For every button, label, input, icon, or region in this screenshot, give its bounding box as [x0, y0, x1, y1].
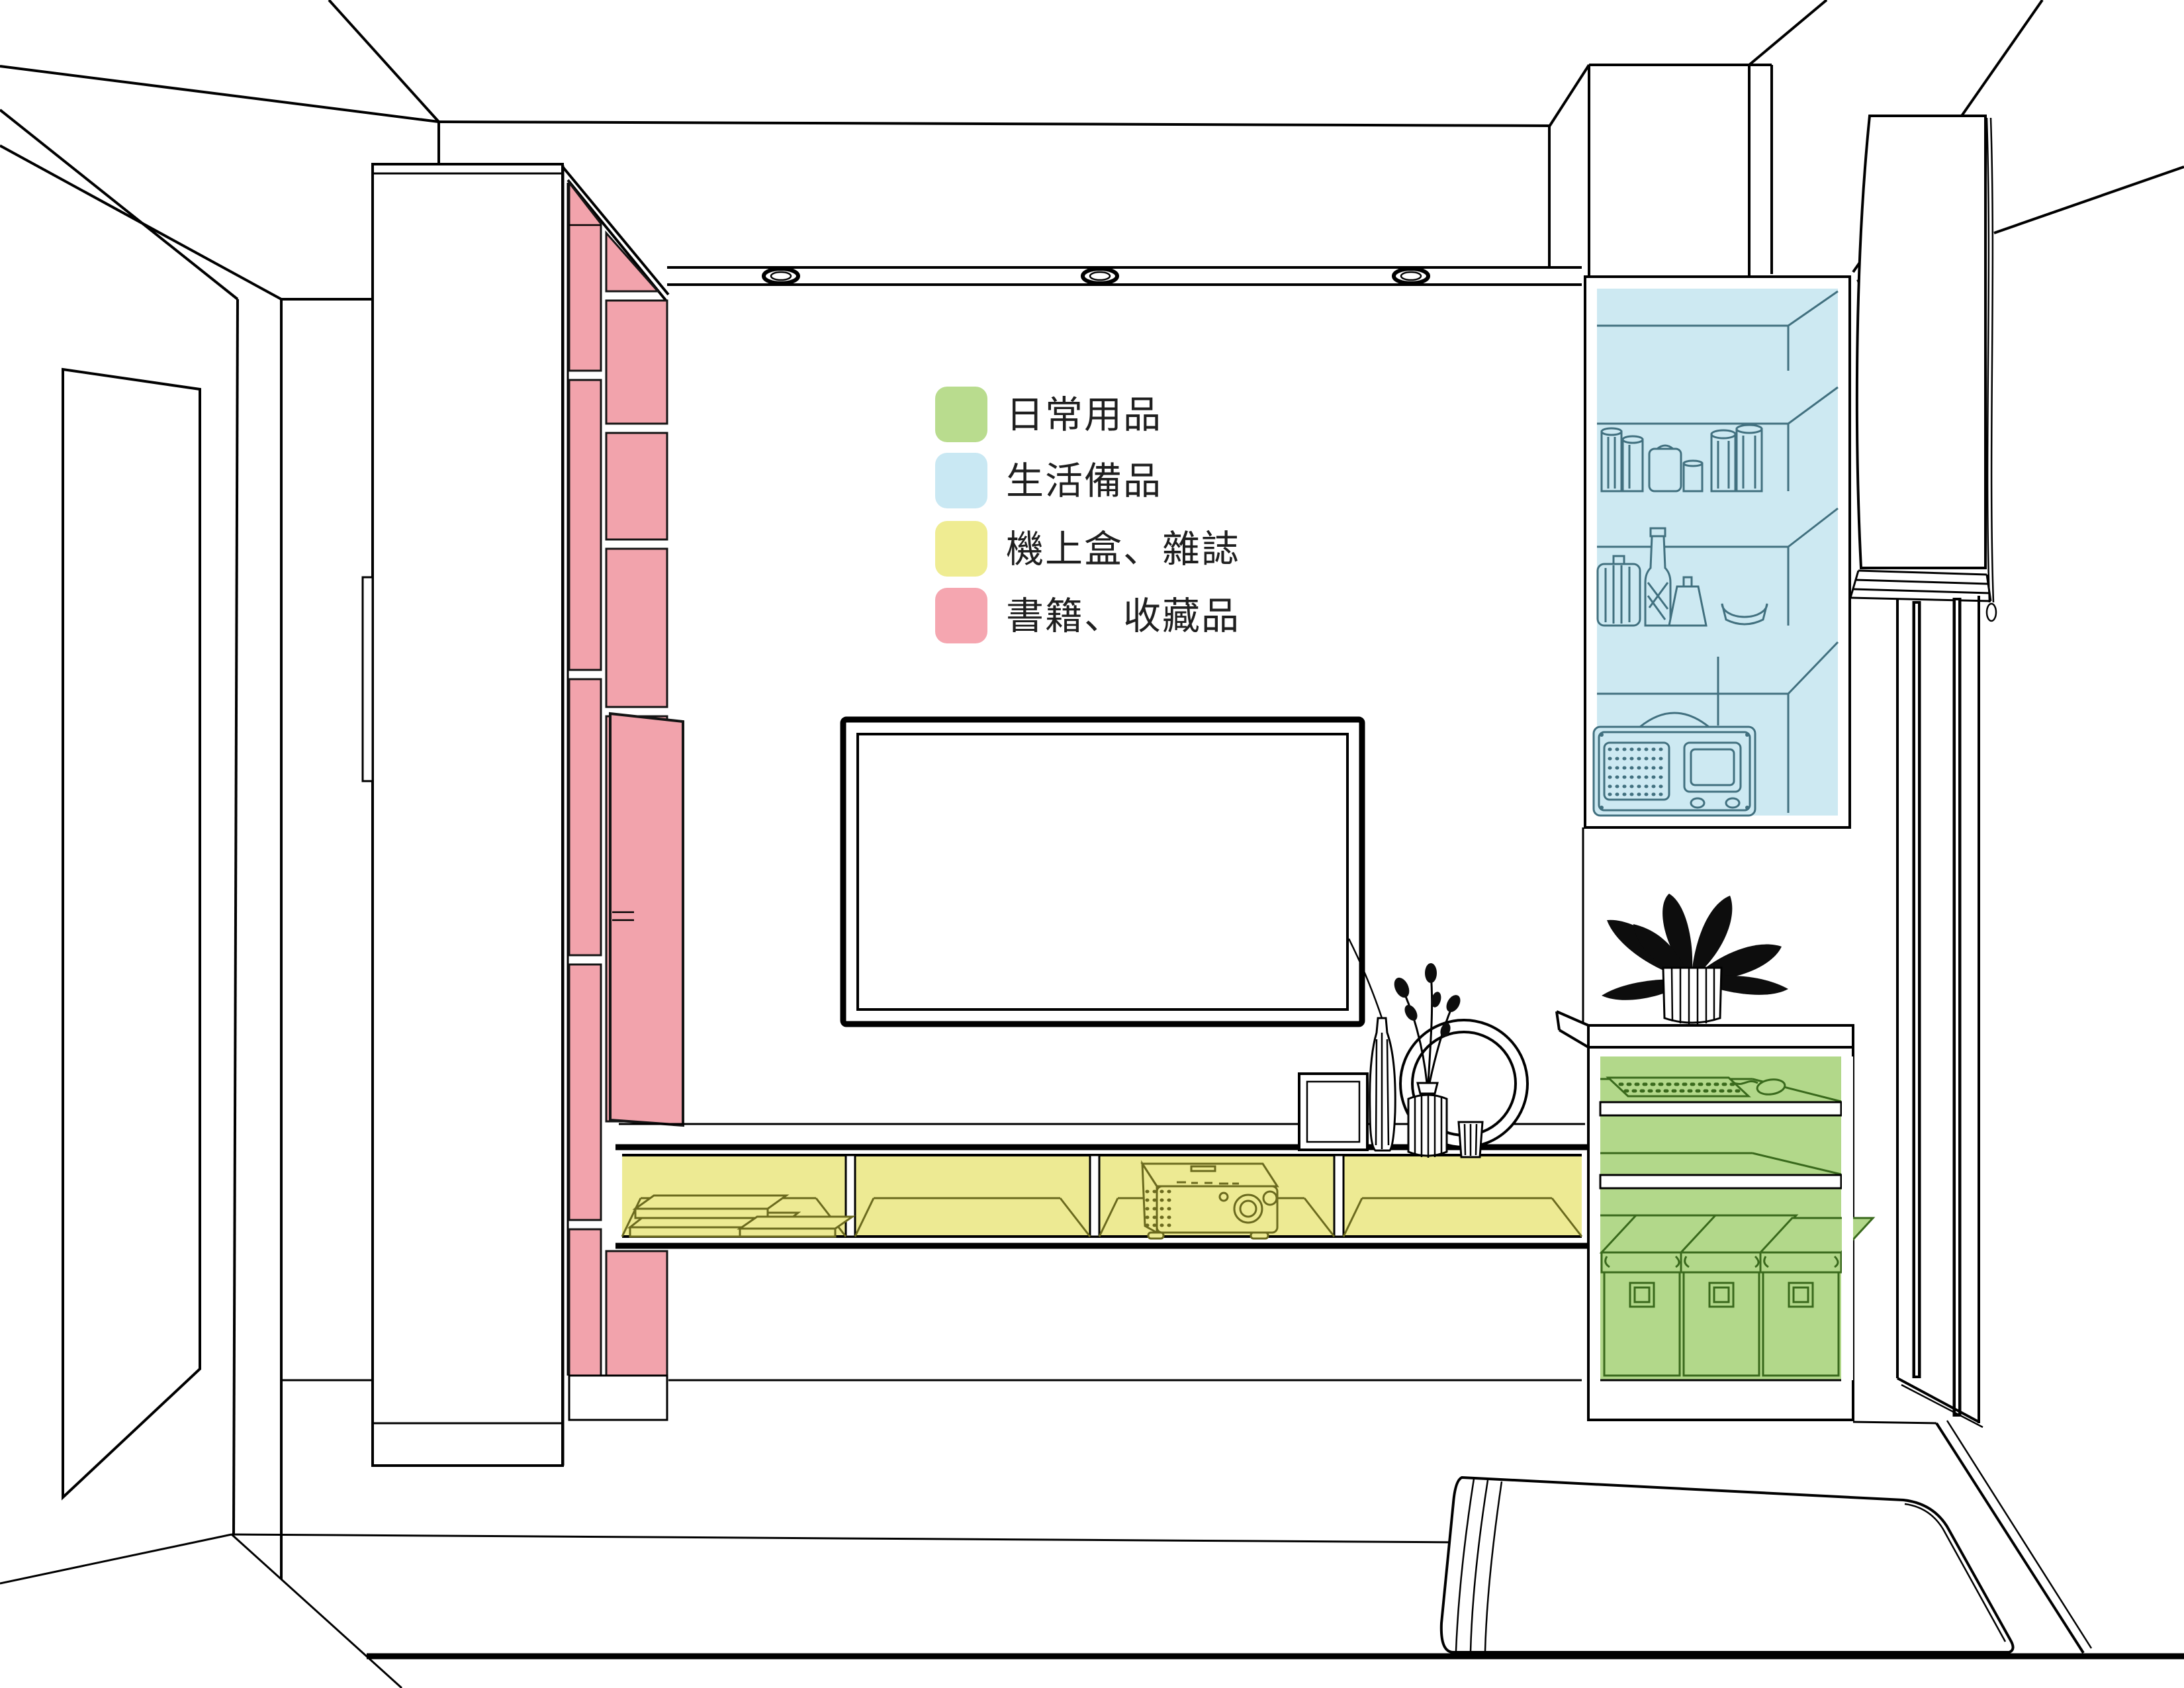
- pink-cell: [569, 380, 601, 670]
- keyboard: [1608, 1078, 1749, 1096]
- console-divider: [1090, 1155, 1099, 1237]
- pink-cell: [569, 183, 601, 371]
- upper-cabinet-blue-zone: [1585, 277, 1850, 827]
- ceiling-soffit: [667, 267, 1582, 285]
- pink-cell: [606, 233, 658, 291]
- pink-cell: [569, 1229, 601, 1376]
- pink-cell: [606, 301, 667, 424]
- legend-swatch-yellow: [935, 521, 987, 577]
- pink-cell: [606, 1251, 667, 1376]
- left-beam-edge-2: [0, 146, 281, 299]
- radio-body: [1594, 727, 1755, 816]
- ceiling-left-junction: [0, 66, 439, 122]
- floor-front-diagonal: [232, 1534, 402, 1688]
- window-base-line: [1853, 1422, 1936, 1423]
- wardrobe-handle: [363, 577, 373, 781]
- projector-front: [1157, 1186, 1277, 1233]
- legend-label: 日常用品: [1006, 393, 1162, 437]
- legend-item-books: 書籍、收藏品: [935, 588, 1240, 643]
- legend-item-daily: 日常用品: [935, 387, 1162, 442]
- bed: [1441, 1477, 2013, 1652]
- pink-cell: [606, 433, 667, 539]
- mattress: [1441, 1477, 2013, 1652]
- right-wall-steep-b: [1962, 0, 2042, 116]
- window: [1897, 596, 2091, 1653]
- legend-swatch-blue: [935, 453, 987, 508]
- ceiling-back-junction: [439, 122, 1549, 126]
- pink-cell: [606, 549, 667, 707]
- legend-item-settop: 機上盒、雜誌: [935, 521, 1240, 577]
- left-beam-edge-1: [0, 110, 238, 299]
- left-corner-vertical-1: [234, 299, 238, 1534]
- legend-swatch-pink: [935, 588, 987, 643]
- pink-cell: [569, 964, 601, 1220]
- green-cabinet-counter: [1588, 1025, 1853, 1047]
- picture-frame: [1299, 1074, 1367, 1150]
- legend-swatch-green: [935, 387, 987, 442]
- blind-cord: [1987, 118, 1996, 621]
- legend: 日常用品 生活備品 機上盒、雜誌 書籍、收藏品: [935, 387, 1240, 643]
- downlight-icon: [1394, 269, 1428, 283]
- cabinet-ceiling-diagonal: [1549, 65, 1589, 126]
- blind-slats: [1850, 571, 1991, 601]
- room-rendering: 日常用品 生活備品 機上盒、雜誌 書籍、收藏品: [0, 0, 2184, 1688]
- pink-cell: [569, 679, 601, 955]
- green-shelf: [1600, 1102, 1841, 1115]
- ceiling-corner-line: [329, 0, 439, 122]
- small-cup: [1459, 1122, 1482, 1157]
- window-sill: [1897, 1378, 1979, 1422]
- legend-item-supplies: 生活備品: [935, 453, 1162, 508]
- console-divider: [1334, 1155, 1343, 1237]
- projector: [1142, 1164, 1277, 1239]
- downlight-icon: [764, 269, 798, 283]
- lower-cabinet-green-zone: [1557, 827, 1873, 1420]
- legend-label: 生活備品: [1006, 459, 1162, 503]
- floor-back-edge: [232, 1534, 1462, 1542]
- storage-boxes: [1602, 1215, 1873, 1376]
- tv: [843, 720, 1362, 1024]
- green-shelf: [1600, 1175, 1841, 1188]
- legend-label: 書籍、收藏品: [1006, 594, 1240, 638]
- legend-label: 機上盒、雜誌: [1006, 528, 1240, 571]
- bookshelf-base: [569, 1376, 667, 1420]
- floor-edge-left-diagonal: [0, 1534, 232, 1583]
- console-divider: [846, 1155, 855, 1237]
- roman-blind: [1850, 116, 1996, 621]
- blind-panel: [1857, 116, 1985, 568]
- downlight-icon: [1083, 269, 1117, 283]
- upper-cabinet-white-box: [1589, 0, 1827, 277]
- projector-foot: [1148, 1233, 1163, 1239]
- wardrobe-front: [373, 164, 563, 1466]
- potted-plant: [1602, 894, 1788, 1025]
- left-wall-panel: [63, 369, 200, 1497]
- green-frame-right: [1842, 1056, 1853, 1380]
- right-wall-shallow-b: [1994, 167, 2184, 233]
- tv-screen: [858, 734, 1347, 1009]
- projector-foot: [1251, 1233, 1268, 1239]
